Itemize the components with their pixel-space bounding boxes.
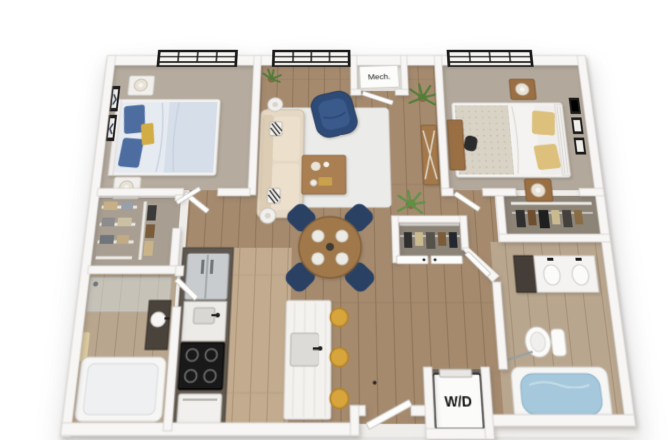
dining-table [298, 217, 361, 278]
vanity-right [514, 256, 599, 292]
kitchen-island [284, 301, 331, 420]
wall-bath-right-north [499, 234, 611, 242]
window-bedroom-right [447, 50, 534, 67]
toilet-tank [550, 329, 567, 356]
mech-label: Mech. [368, 72, 391, 82]
floorplan-render: W/D [0, 0, 670, 440]
bar-stools [330, 308, 348, 408]
laundry-closet: W/D [433, 369, 484, 428]
vanity-left [145, 301, 171, 350]
sofa-pillow-1 [269, 122, 282, 136]
sofa [257, 110, 304, 218]
media-console [421, 125, 439, 184]
floor-lamp-bottom [260, 208, 276, 223]
bathtub-right [511, 367, 614, 421]
dishwasher [177, 394, 222, 424]
mech-closet: Mech. [359, 65, 399, 88]
kitchen-floor [225, 248, 292, 424]
stove [178, 343, 224, 389]
counter-sink [182, 302, 227, 341]
tub-water [520, 374, 604, 415]
washer-dryer-label: W/D [444, 393, 472, 410]
bathtub-left [74, 357, 166, 421]
nightstand-right-top [509, 79, 536, 99]
bed-left [108, 99, 220, 175]
window-living-room [272, 50, 351, 67]
pillow-tan-1 [532, 110, 555, 136]
entry-step-wall [350, 405, 359, 435]
nightstand-left-top [128, 76, 155, 95]
floorplan-3d-tilt: W/D [0, 29, 670, 440]
floor-lamp-top [267, 98, 282, 112]
wall-bottom-right [493, 415, 636, 427]
sofa-pillow-2 [267, 188, 280, 203]
coffee-table [302, 155, 346, 194]
wall-bottom-left [61, 423, 360, 436]
nightstand-right-bottom [524, 179, 553, 201]
floorplan-svg: W/D [0, 29, 670, 440]
pillow-yellow [141, 123, 154, 146]
windows [156, 50, 533, 67]
window-bedroom-left [156, 50, 237, 67]
